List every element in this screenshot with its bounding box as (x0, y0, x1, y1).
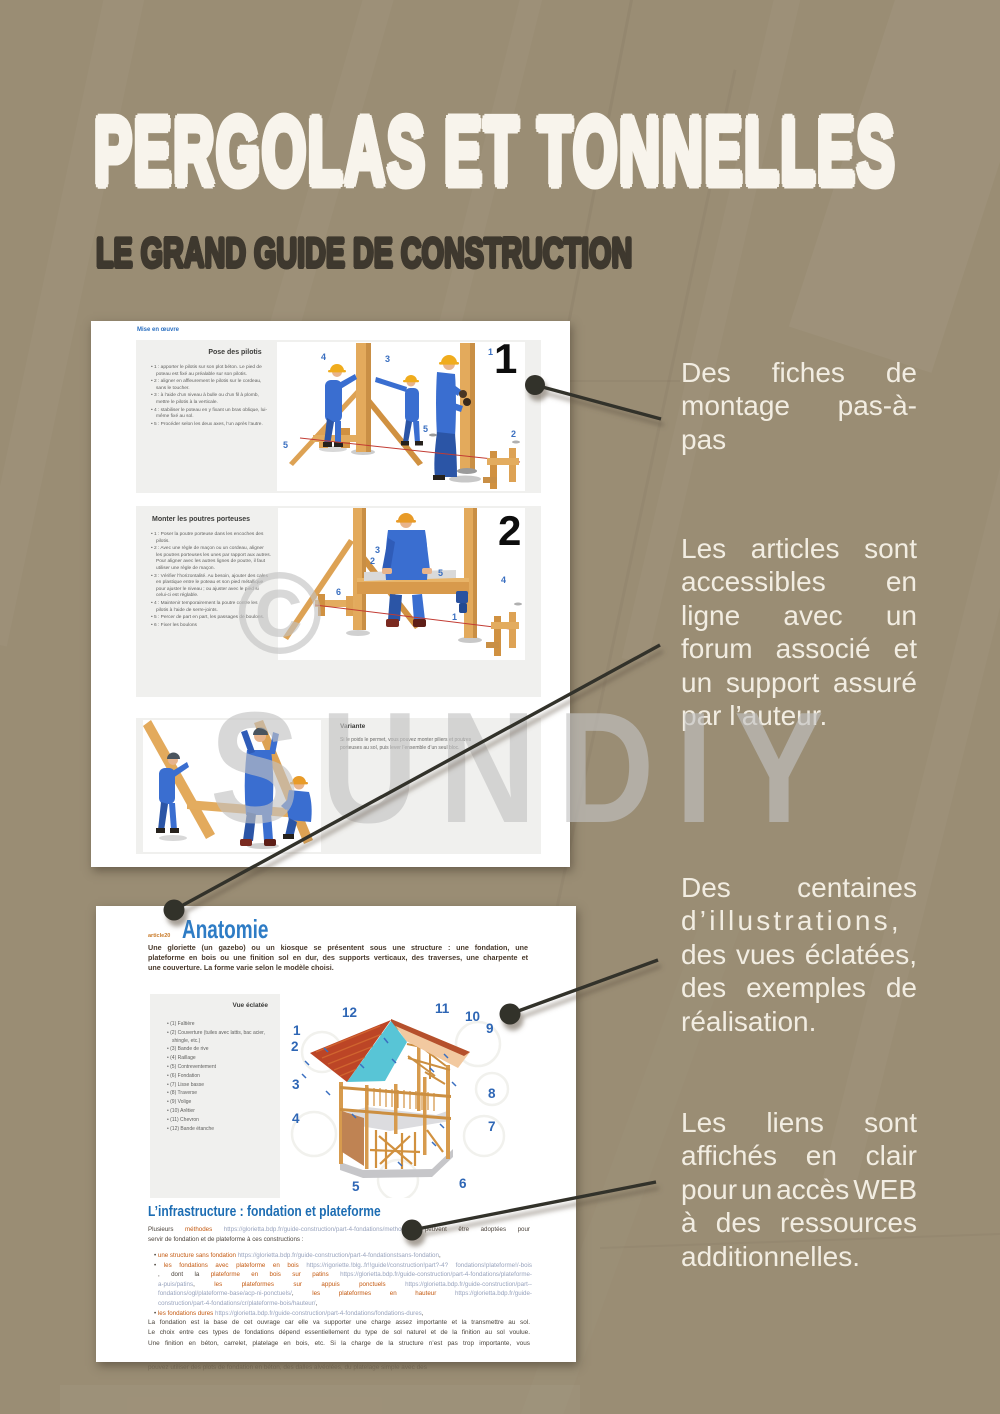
svg-text:4: 4 (321, 352, 326, 362)
svg-text:9: 9 (486, 1021, 494, 1036)
svg-text:4: 4 (501, 575, 506, 585)
svg-text:1: 1 (494, 342, 517, 382)
svg-text:10: 10 (465, 1009, 480, 1024)
svg-text:2: 2 (291, 1039, 299, 1054)
svg-text:3: 3 (375, 545, 380, 555)
svg-text:11: 11 (435, 1001, 450, 1016)
svg-text:5: 5 (423, 424, 428, 434)
svg-text:2: 2 (498, 508, 521, 554)
svg-text:6: 6 (336, 587, 341, 597)
svg-text:12: 12 (342, 1005, 357, 1020)
svg-text:3: 3 (385, 354, 390, 364)
svg-text:5: 5 (438, 568, 443, 578)
svg-text:1: 1 (293, 1023, 301, 1038)
svg-text:1: 1 (488, 347, 493, 357)
svg-text:8: 8 (488, 1086, 496, 1101)
svg-text:4: 4 (292, 1111, 300, 1126)
svg-text:2: 2 (511, 429, 516, 439)
svg-text:2: 2 (370, 556, 375, 566)
svg-text:7: 7 (488, 1119, 496, 1134)
svg-text:5: 5 (352, 1179, 360, 1194)
svg-text:3: 3 (292, 1077, 300, 1092)
svg-text:5: 5 (283, 440, 288, 450)
svg-text:1: 1 (452, 612, 457, 622)
svg-text:6: 6 (459, 1176, 467, 1191)
